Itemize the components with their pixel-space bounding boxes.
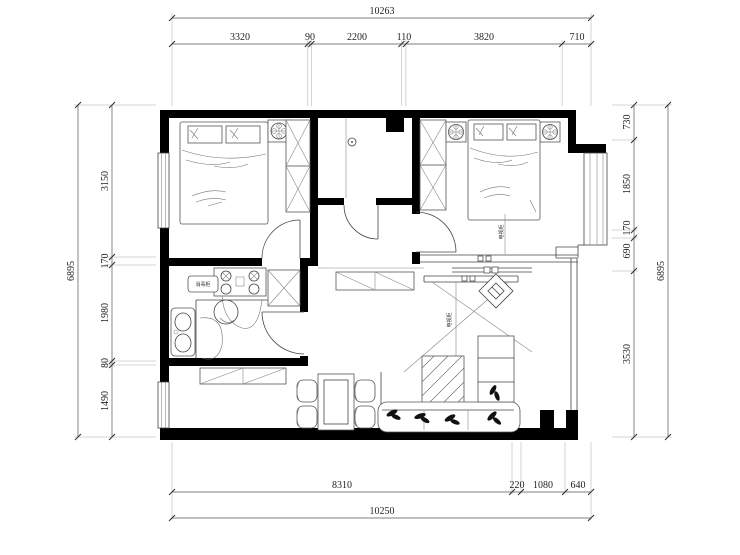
dim-top-seg-0: 3320 — [230, 32, 250, 43]
dim-top-total: 10263 — [370, 6, 395, 17]
pillow — [507, 124, 536, 140]
dim-top-seg-2: 2200 — [347, 32, 367, 43]
dim-right-seg-2: 170 — [622, 221, 633, 236]
dim-top-seg-3: 110 — [397, 32, 412, 43]
dim-top-seg-4: 3820 — [474, 32, 494, 43]
bedroom1 — [180, 120, 310, 224]
master-bedroom-door — [416, 212, 456, 252]
entry-wall-stub — [540, 410, 554, 428]
kitchen-door — [262, 312, 304, 354]
wardrobe — [286, 120, 310, 212]
dim-top-seg-1: 90 — [305, 32, 315, 43]
tv-cabinet — [424, 276, 518, 282]
pillow — [226, 126, 260, 143]
dim-bottom-total: 10250 — [370, 506, 395, 517]
dim-right-seg-4: 3530 — [622, 344, 633, 364]
dim-right-seg-3: 690 — [622, 244, 633, 259]
dim-left-seg-1: 170 — [100, 254, 111, 269]
dim-bottom-seg-3: 640 — [571, 480, 586, 491]
dining-area — [297, 372, 381, 430]
dim-bottom-seg-2: 1080 — [533, 480, 553, 491]
dim-bottom-seg-0: 8310 — [332, 480, 352, 491]
chair — [355, 380, 375, 402]
dim-right-seg-1: 1850 — [622, 174, 633, 194]
stove — [214, 268, 266, 296]
chair — [355, 406, 375, 428]
nightstand — [446, 122, 466, 142]
floor-plan-canvas: 10263 3320 90 2200 110 3820 710 8310 220… — [0, 0, 740, 555]
dim-left-seg-0: 3150 — [100, 171, 111, 191]
kitchen: 消毒柜 — [171, 268, 300, 359]
bathroom — [346, 118, 356, 198]
label-sterilizer-cabinet: 消毒柜 — [195, 281, 210, 288]
shoe-cabinet — [200, 368, 286, 384]
dim-bottom-seg-1: 220 — [510, 480, 525, 491]
dining-window — [158, 382, 169, 428]
bedroom1-door — [262, 220, 300, 258]
dim-top-seg-5: 710 — [570, 32, 585, 43]
bathroom-door — [344, 205, 378, 239]
pillow — [188, 126, 222, 143]
chair-sketch — [200, 318, 222, 359]
dim-right-total: 6895 — [656, 261, 667, 281]
dining-table — [318, 374, 354, 430]
nightstand — [540, 122, 560, 142]
master-bedroom: 电视柜 — [420, 120, 560, 273]
chair — [297, 380, 317, 402]
wall-pillar — [386, 112, 404, 132]
master-bay-window — [556, 153, 607, 258]
refrigerator — [268, 270, 300, 306]
bedroom1-window — [158, 153, 169, 228]
label-master-tv-cabinet: 电视柜 — [498, 224, 505, 239]
pillow — [474, 124, 503, 140]
tv-cabinet — [452, 267, 532, 273]
appliance-box: 消毒柜 — [188, 276, 218, 292]
coffee-table — [422, 356, 464, 404]
wardrobe — [420, 120, 446, 210]
label-living-tv-cabinet: 电视柜 — [446, 312, 453, 327]
dim-left-seg-3: 80 — [100, 358, 111, 368]
dim-right-seg-0: 730 — [622, 115, 633, 130]
dim-left-seg-2: 1980 — [100, 303, 111, 323]
dim-left-total: 6895 — [66, 261, 77, 281]
hall-cabinet — [336, 272, 414, 290]
living-window-wall — [556, 258, 577, 410]
master-south-wall — [420, 255, 578, 262]
entry-wall-stub — [566, 410, 578, 428]
range-hood — [214, 296, 262, 328]
dim-left-seg-4: 1490 — [100, 391, 111, 411]
chair — [297, 406, 317, 428]
living-room: 电视柜 — [378, 274, 532, 432]
sink — [171, 308, 195, 356]
